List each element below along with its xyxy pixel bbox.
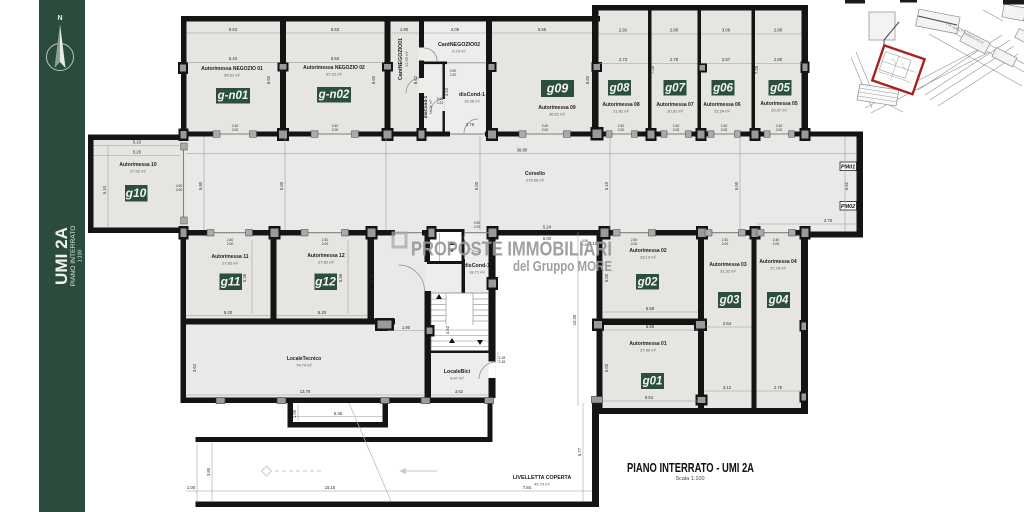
svg-text:3.90: 3.90 — [176, 188, 183, 192]
svg-text:Autorimessa NEGOZIO 02: Autorimessa NEGOZIO 02 — [303, 65, 365, 71]
svg-text:22.24 m²: 22.24 m² — [714, 109, 730, 114]
svg-text:g05: g05 — [769, 83, 790, 95]
svg-text:PM01: PM01 — [841, 165, 855, 171]
svg-text:12.55 m²: 12.55 m² — [404, 50, 409, 66]
svg-text:7.25: 7.25 — [650, 65, 655, 74]
svg-text:PIANO INTERRATO - UMI 2A: PIANO INTERRATO - UMI 2A — [627, 461, 754, 475]
svg-text:28.13 m²: 28.13 m² — [640, 255, 656, 260]
svg-text:2.20: 2.20 — [437, 101, 444, 105]
svg-text:1.90: 1.90 — [400, 27, 409, 32]
svg-text:g03: g03 — [719, 295, 740, 307]
svg-text:8.60: 8.60 — [371, 75, 376, 84]
svg-text:45.74 m²: 45.74 m² — [534, 482, 550, 487]
svg-text:2.00: 2.00 — [776, 128, 783, 132]
svg-text:Autorimessa 12: Autorimessa 12 — [307, 253, 344, 259]
svg-text:9.79 m²: 9.79 m² — [452, 49, 466, 54]
svg-text:g07: g07 — [664, 83, 685, 95]
svg-text:g08: g08 — [609, 83, 630, 95]
svg-text:g-n02: g-n02 — [318, 89, 350, 101]
svg-text:LocaleTecnico: LocaleTecnico — [287, 356, 321, 362]
svg-text:1.00: 1.00 — [187, 485, 196, 490]
svg-text:Autorimessa 06: Autorimessa 06 — [703, 102, 740, 108]
svg-text:2.00: 2.00 — [722, 242, 729, 246]
svg-text:Autorimessa 11: Autorimessa 11 — [212, 254, 249, 260]
svg-text:21.81 m²: 21.81 m² — [613, 109, 629, 114]
svg-text:13.76: 13.76 — [300, 389, 311, 394]
svg-text:38.80: 38.80 — [517, 148, 528, 153]
svg-text:9.47 m²: 9.47 m² — [450, 376, 464, 381]
svg-text:5.43: 5.43 — [229, 56, 238, 61]
svg-text:2.00: 2.00 — [673, 128, 680, 132]
svg-text:PM02: PM02 — [841, 204, 855, 210]
svg-text:Autorimessa 10: Autorimessa 10 — [119, 162, 156, 168]
svg-text:5.63: 5.63 — [331, 27, 340, 32]
svg-text:3.62: 3.62 — [192, 363, 197, 372]
svg-text:5.36: 5.36 — [369, 273, 374, 282]
svg-text:disCond-1: disCond-1 — [459, 92, 485, 98]
svg-text:Scala 1:100: Scala 1:100 — [675, 476, 704, 482]
svg-text:5.53: 5.53 — [229, 27, 238, 32]
svg-text:CantNEGOZIO02: CantNEGOZIO02 — [438, 42, 480, 48]
svg-text:15.10: 15.10 — [325, 485, 336, 490]
svg-text:2.00: 2.00 — [721, 128, 728, 132]
svg-text:3.62: 3.62 — [455, 389, 464, 394]
svg-text:LIVELLETTA COPERTA: LIVELLETTA COPERTA — [513, 475, 572, 481]
svg-text:27.90 m²: 27.90 m² — [640, 348, 656, 353]
svg-text:disCond-1: disCond-1 — [464, 263, 490, 269]
svg-text:10.05: 10.05 — [572, 314, 577, 325]
svg-text:16.36 m²: 16.36 m² — [464, 99, 480, 104]
svg-text:273.00 m²: 273.00 m² — [526, 178, 545, 183]
svg-text:16.36 m²: 16.36 m² — [429, 99, 433, 114]
svg-text:31.32 m²: 31.32 m² — [720, 269, 736, 274]
svg-text:Autorimessa 08: Autorimessa 08 — [602, 102, 639, 108]
svg-text:8.60: 8.60 — [266, 75, 271, 84]
svg-text:Corsello: Corsello — [525, 171, 545, 177]
svg-text:2.75: 2.75 — [774, 385, 783, 390]
svg-text:Autorimessa 05: Autorimessa 05 — [760, 101, 797, 107]
svg-text:3.12: 3.12 — [723, 385, 732, 390]
svg-text:2.73: 2.73 — [619, 57, 628, 62]
svg-text:g02: g02 — [637, 277, 658, 289]
svg-text:g01: g01 — [642, 376, 663, 388]
svg-text:96.61 m²: 96.61 m² — [224, 73, 240, 78]
svg-text:LocaleBici: LocaleBici — [444, 369, 471, 375]
svg-text:2.78: 2.78 — [670, 57, 679, 62]
svg-text:3.06: 3.06 — [722, 28, 731, 33]
svg-text:2.64: 2.64 — [723, 321, 732, 326]
svg-text:5.80: 5.80 — [198, 181, 203, 190]
svg-text:97.22 m²: 97.22 m² — [326, 72, 342, 77]
svg-text:74.74 m²: 74.74 m² — [296, 363, 312, 368]
svg-text:g10: g10 — [125, 186, 147, 200]
svg-text:27.02 m²: 27.02 m² — [130, 169, 146, 174]
svg-text:8.62: 8.62 — [413, 75, 418, 84]
svg-text:4.05: 4.05 — [451, 27, 460, 32]
svg-text:18.71 m²: 18.71 m² — [469, 270, 485, 275]
svg-text:2.80: 2.80 — [774, 57, 783, 62]
svg-text:2.00: 2.00 — [227, 242, 234, 246]
svg-text:g04: g04 — [768, 295, 789, 307]
svg-text:2.00: 2.00 — [322, 242, 329, 246]
svg-text:5.00: 5.00 — [604, 363, 609, 372]
svg-text:Autorimessa NEGOZIO 01: Autorimessa NEGOZIO 01 — [201, 66, 263, 72]
svg-text:UMI 2A: UMI 2A — [53, 227, 71, 285]
svg-text:Autorimessa 02: Autorimessa 02 — [629, 248, 666, 254]
svg-text:5.58: 5.58 — [646, 324, 655, 329]
svg-text:8.60: 8.60 — [585, 75, 590, 84]
svg-text:2.00: 2.00 — [631, 242, 638, 246]
svg-text:2.92: 2.92 — [619, 28, 628, 33]
svg-text:Autorimessa 09: Autorimessa 09 — [538, 105, 575, 111]
svg-text:2.00: 2.00 — [542, 128, 549, 132]
svg-text:20.37 m²: 20.37 m² — [771, 108, 787, 113]
svg-text:2.76: 2.76 — [466, 122, 475, 127]
svg-text:1:100: 1:100 — [78, 250, 84, 263]
svg-text:7.84: 7.84 — [523, 485, 532, 490]
svg-text:PIANO INTERRATO: PIANO INTERRATO — [71, 225, 77, 286]
svg-text:4.52: 4.52 — [445, 325, 450, 334]
svg-text:7.25: 7.25 — [754, 65, 759, 74]
svg-text:27.76 m²: 27.76 m² — [770, 266, 786, 271]
svg-text:g12: g12 — [314, 275, 336, 289]
svg-text:5.77: 5.77 — [577, 447, 582, 456]
svg-text:5.20: 5.20 — [133, 150, 142, 155]
svg-text:g09: g09 — [546, 82, 569, 96]
svg-text:g11: g11 — [220, 275, 241, 289]
svg-text:2.70: 2.70 — [824, 218, 833, 223]
svg-text:9.54: 9.54 — [645, 395, 654, 400]
svg-text:2.80: 2.80 — [670, 28, 679, 33]
svg-text:6.61: 6.61 — [844, 181, 849, 190]
svg-text:del Gruppo MORE: del Gruppo MORE — [513, 258, 612, 275]
svg-text:5.53: 5.53 — [331, 56, 340, 61]
svg-text:4.52: 4.52 — [444, 87, 449, 96]
svg-text:g06: g06 — [712, 83, 733, 95]
svg-text:27.82 m²: 27.82 m² — [222, 261, 238, 266]
svg-text:Autorimessa 03: Autorimessa 03 — [709, 262, 746, 268]
svg-text:5.10: 5.10 — [102, 185, 107, 194]
svg-text:2.80: 2.80 — [774, 28, 783, 33]
svg-text:1.00: 1.00 — [292, 409, 297, 418]
svg-text:27.82 m²: 27.82 m² — [318, 260, 334, 265]
svg-text:5.55: 5.55 — [538, 27, 547, 32]
svg-text:5.58: 5.58 — [646, 306, 655, 311]
svg-text:2.00: 2.00 — [332, 128, 339, 132]
svg-text:2.00: 2.00 — [232, 128, 239, 132]
svg-text:5.10: 5.10 — [604, 181, 609, 190]
svg-text:2.00: 2.00 — [618, 128, 625, 132]
svg-text:disCond-1: disCond-1 — [423, 95, 428, 118]
svg-text:5.20: 5.20 — [318, 310, 327, 315]
svg-text:5.24: 5.24 — [543, 225, 552, 230]
svg-text:5.00: 5.00 — [279, 181, 284, 190]
svg-text:Autorimessa 01: Autorimessa 01 — [629, 341, 666, 347]
svg-text:5.20: 5.20 — [224, 310, 233, 315]
svg-text:3.80: 3.80 — [206, 467, 211, 476]
svg-text:N: N — [57, 15, 62, 22]
svg-text:2.20: 2.20 — [474, 225, 481, 229]
svg-text:1.90: 1.90 — [402, 325, 411, 330]
svg-text:5.00: 5.00 — [734, 181, 739, 190]
svg-text:36.61 m²: 36.61 m² — [549, 112, 565, 117]
svg-text:2.28: 2.28 — [499, 360, 506, 364]
svg-text:5.00: 5.00 — [474, 181, 479, 190]
svg-text:Autorimessa 04: Autorimessa 04 — [759, 259, 796, 265]
svg-text:2.00: 2.00 — [773, 242, 780, 246]
svg-text:20.31 m²: 20.31 m² — [667, 109, 683, 114]
svg-text:g-n01: g-n01 — [217, 90, 249, 102]
svg-text:5.36: 5.36 — [338, 273, 343, 282]
svg-text:5.35: 5.35 — [334, 411, 343, 416]
svg-text:Autorimessa 07: Autorimessa 07 — [656, 102, 693, 108]
svg-text:2.67: 2.67 — [722, 57, 731, 62]
svg-text:5.10: 5.10 — [133, 140, 142, 145]
svg-text:5.36: 5.36 — [242, 273, 247, 282]
svg-text:2.20: 2.20 — [450, 73, 457, 77]
